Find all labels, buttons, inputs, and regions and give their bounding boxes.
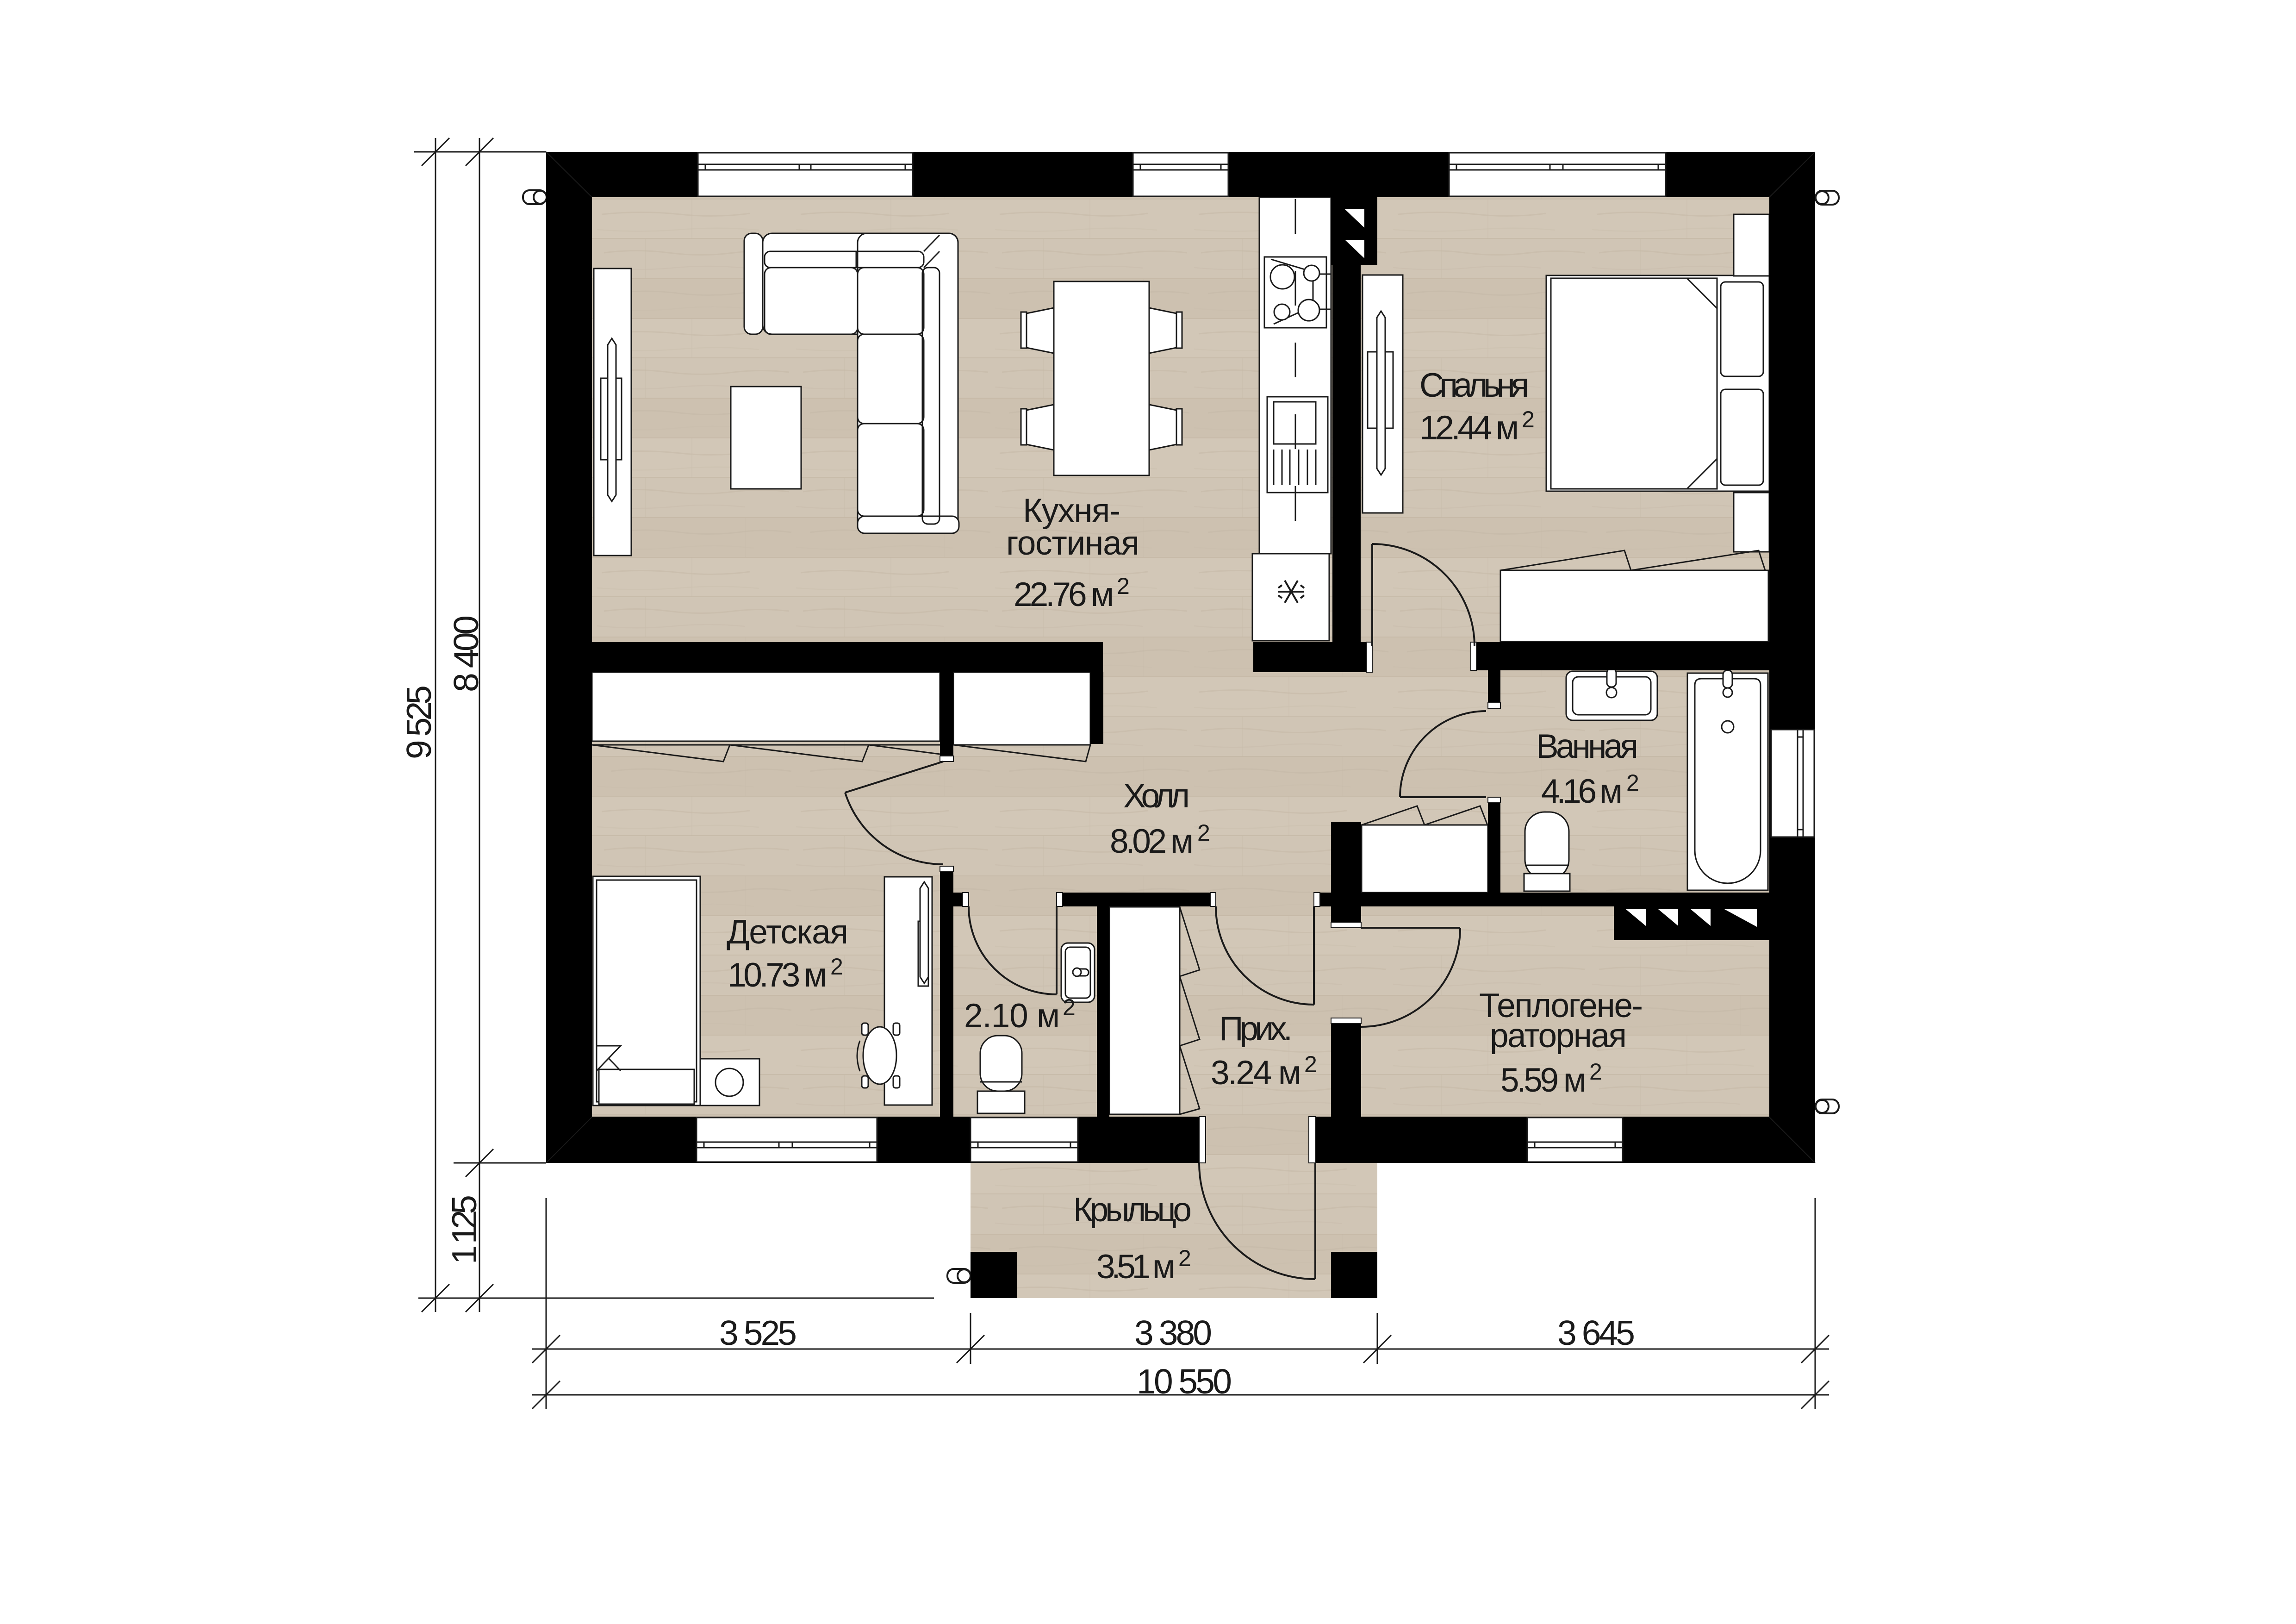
svg-text:Детская: Детская [727, 913, 848, 951]
svg-text:3.51 м: 3.51 м [1096, 1248, 1176, 1286]
svg-text:Ванная: Ванная [1536, 728, 1638, 765]
svg-text:раторная: раторная [1490, 1017, 1627, 1055]
svg-text:1 125: 1 125 [445, 1195, 484, 1264]
svg-text:3.24 м: 3.24 м [1211, 1054, 1301, 1092]
svg-text:гостиная: гостиная [1006, 525, 1139, 562]
svg-text:8 400: 8 400 [447, 615, 485, 692]
svg-text:2: 2 [1178, 1245, 1191, 1271]
svg-text:2: 2 [1117, 573, 1130, 599]
svg-text:22.76 м: 22.76 м [1014, 576, 1114, 613]
svg-text:3 645: 3 645 [1557, 1313, 1635, 1352]
svg-text:12.44 м: 12.44 м [1419, 409, 1519, 447]
svg-text:2: 2 [1522, 406, 1535, 432]
svg-text:2: 2 [1304, 1051, 1317, 1077]
svg-text:8.02 м: 8.02 м [1110, 823, 1194, 860]
svg-text:2: 2 [1626, 770, 1639, 796]
svg-text:2: 2 [1063, 994, 1076, 1020]
svg-text:10.73 м: 10.73 м [728, 956, 827, 994]
svg-text:Прих.: Прих. [1219, 1010, 1293, 1048]
svg-text:10 550: 10 550 [1137, 1362, 1232, 1401]
svg-text:2: 2 [1589, 1059, 1602, 1085]
svg-text:2: 2 [1197, 820, 1210, 846]
svg-text:Холл: Холл [1123, 777, 1190, 815]
svg-text:Крыльцо: Крыльцо [1073, 1191, 1192, 1229]
svg-text:Спальня: Спальня [1419, 367, 1529, 404]
svg-text:4.16 м: 4.16 м [1541, 773, 1623, 810]
svg-text:2.10 м: 2.10 м [964, 997, 1060, 1035]
svg-text:Кухня-: Кухня- [1023, 492, 1120, 530]
svg-text:3 525: 3 525 [719, 1313, 797, 1352]
svg-text:5.59 м: 5.59 м [1500, 1062, 1587, 1099]
svg-text:2: 2 [830, 954, 843, 980]
svg-text:3 380: 3 380 [1134, 1313, 1212, 1352]
svg-text:9 525: 9 525 [399, 685, 438, 759]
